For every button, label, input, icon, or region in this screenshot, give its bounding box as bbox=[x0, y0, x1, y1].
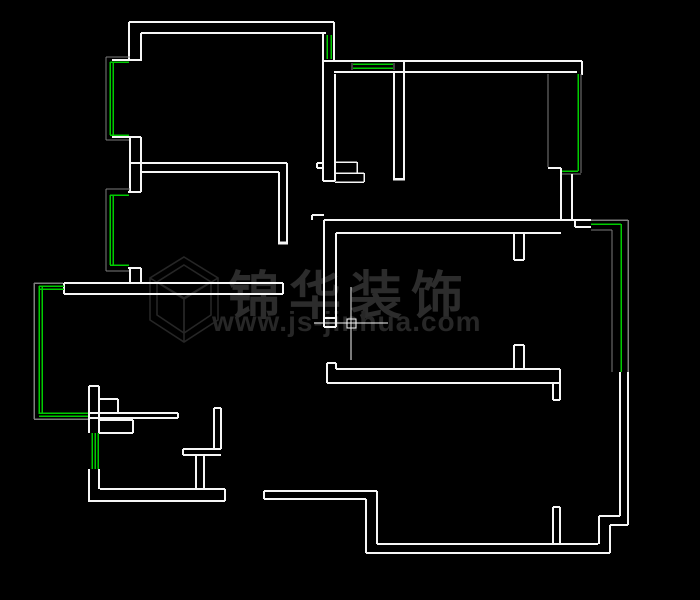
crosshair-cursor bbox=[314, 287, 388, 360]
cad-drawing-area[interactable]: 锦华装饰 www.js-jinhua.com bbox=[0, 0, 700, 600]
wall-and-window-segments bbox=[34, 22, 628, 553]
floor-plan-lines bbox=[0, 0, 700, 600]
